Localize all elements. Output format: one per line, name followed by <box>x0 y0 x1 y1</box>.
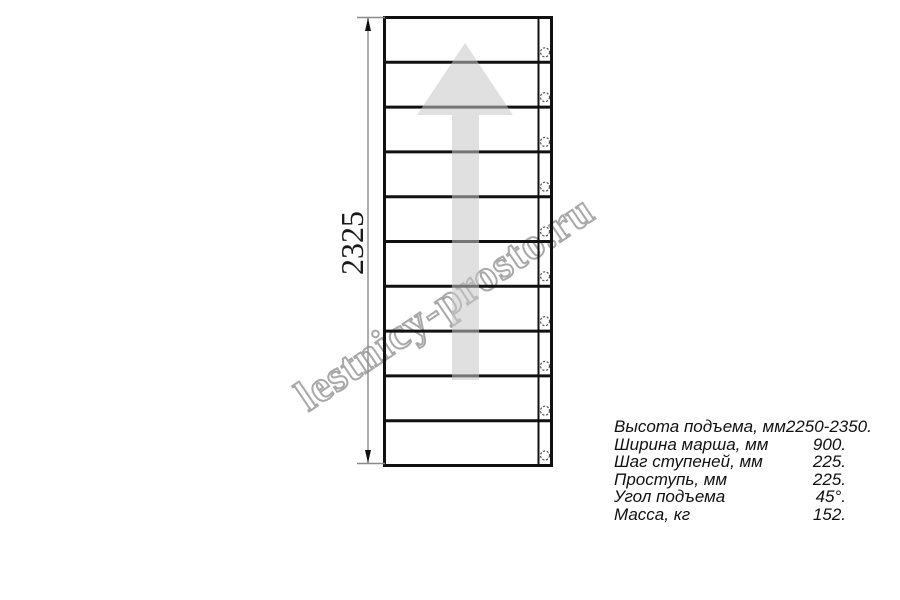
spec-value: 900. <box>813 436 846 454</box>
bolt-circle <box>541 406 550 415</box>
bolt-circle <box>541 361 550 370</box>
up-arrow-shape <box>417 43 513 380</box>
spec-row: Угол подъема 45°. <box>614 488 846 506</box>
bolt-circle <box>541 317 550 326</box>
spec-value: 45°. <box>816 488 846 506</box>
bolt-circle <box>541 227 550 236</box>
spec-value: 225. <box>813 471 846 489</box>
dimension-label: 2325 <box>336 203 368 283</box>
spec-value: 2250-2350. <box>786 418 872 436</box>
spec-label: Высота подъема, мм <box>614 418 786 436</box>
bolt-circle <box>541 182 550 191</box>
bolt-circle <box>541 93 550 102</box>
dimension-arrow-down <box>365 450 371 463</box>
spec-label: Ширина марша, мм <box>614 436 768 454</box>
spec-value: 152. <box>813 506 846 524</box>
spec-label: Масса, кг <box>614 506 690 524</box>
spec-label: Угол подъема <box>614 488 725 506</box>
spec-row: Проступь, мм 225. <box>614 471 846 489</box>
spec-label: Проступь, мм <box>614 471 727 489</box>
spec-row: Масса, кг 152. <box>614 506 846 524</box>
spec-row: Высота подъема, мм 2250-2350. <box>614 418 846 436</box>
specs-table: Высота подъема, мм 2250-2350. Ширина мар… <box>614 418 846 523</box>
spec-value: 225. <box>813 453 846 471</box>
spec-label: Шаг ступеней, мм <box>614 453 763 471</box>
spec-row: Шаг ступеней, мм 225. <box>614 453 846 471</box>
dimension-arrow-up <box>365 18 371 31</box>
bolt-circle <box>541 272 550 281</box>
bolt-circle <box>541 451 550 460</box>
spec-row: Ширина марша, мм 900. <box>614 436 846 454</box>
up-direction-arrow <box>415 42 515 382</box>
bolt-circle <box>541 137 550 146</box>
bolt-circle <box>541 48 550 57</box>
